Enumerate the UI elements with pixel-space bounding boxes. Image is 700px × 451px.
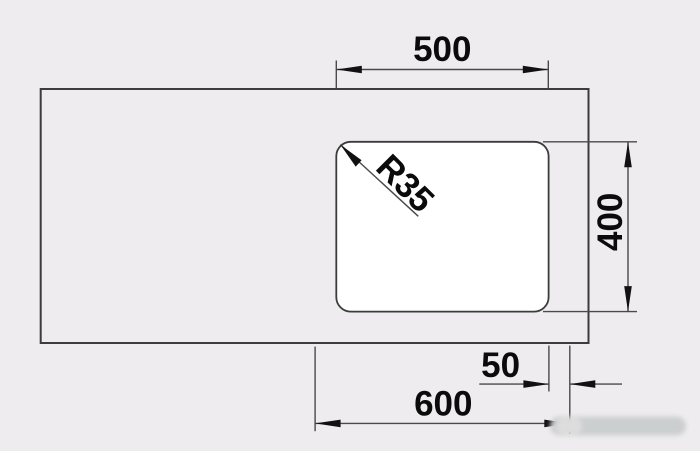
svg-text:50: 50 (481, 346, 520, 385)
svg-text:600: 600 (414, 384, 472, 423)
svg-text:500: 500 (413, 30, 471, 69)
svg-text:400: 400 (591, 193, 630, 251)
